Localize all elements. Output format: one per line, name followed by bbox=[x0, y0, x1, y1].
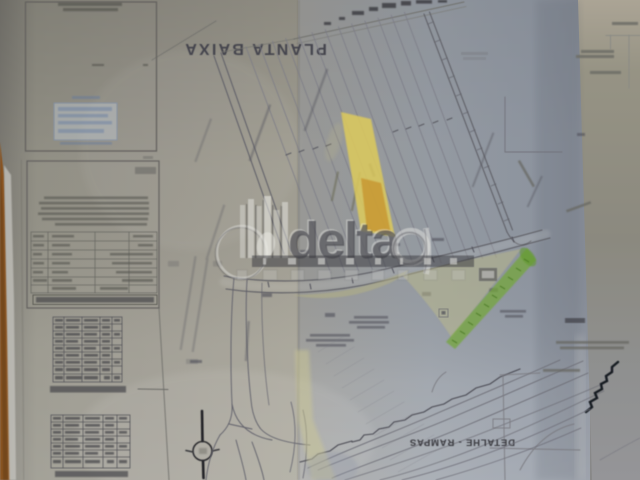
svg-text:PLANTA BAIXA: PLANTA BAIXA bbox=[183, 40, 327, 57]
svg-text:DETALHE - RAMPAS: DETALHE - RAMPAS bbox=[409, 437, 515, 448]
